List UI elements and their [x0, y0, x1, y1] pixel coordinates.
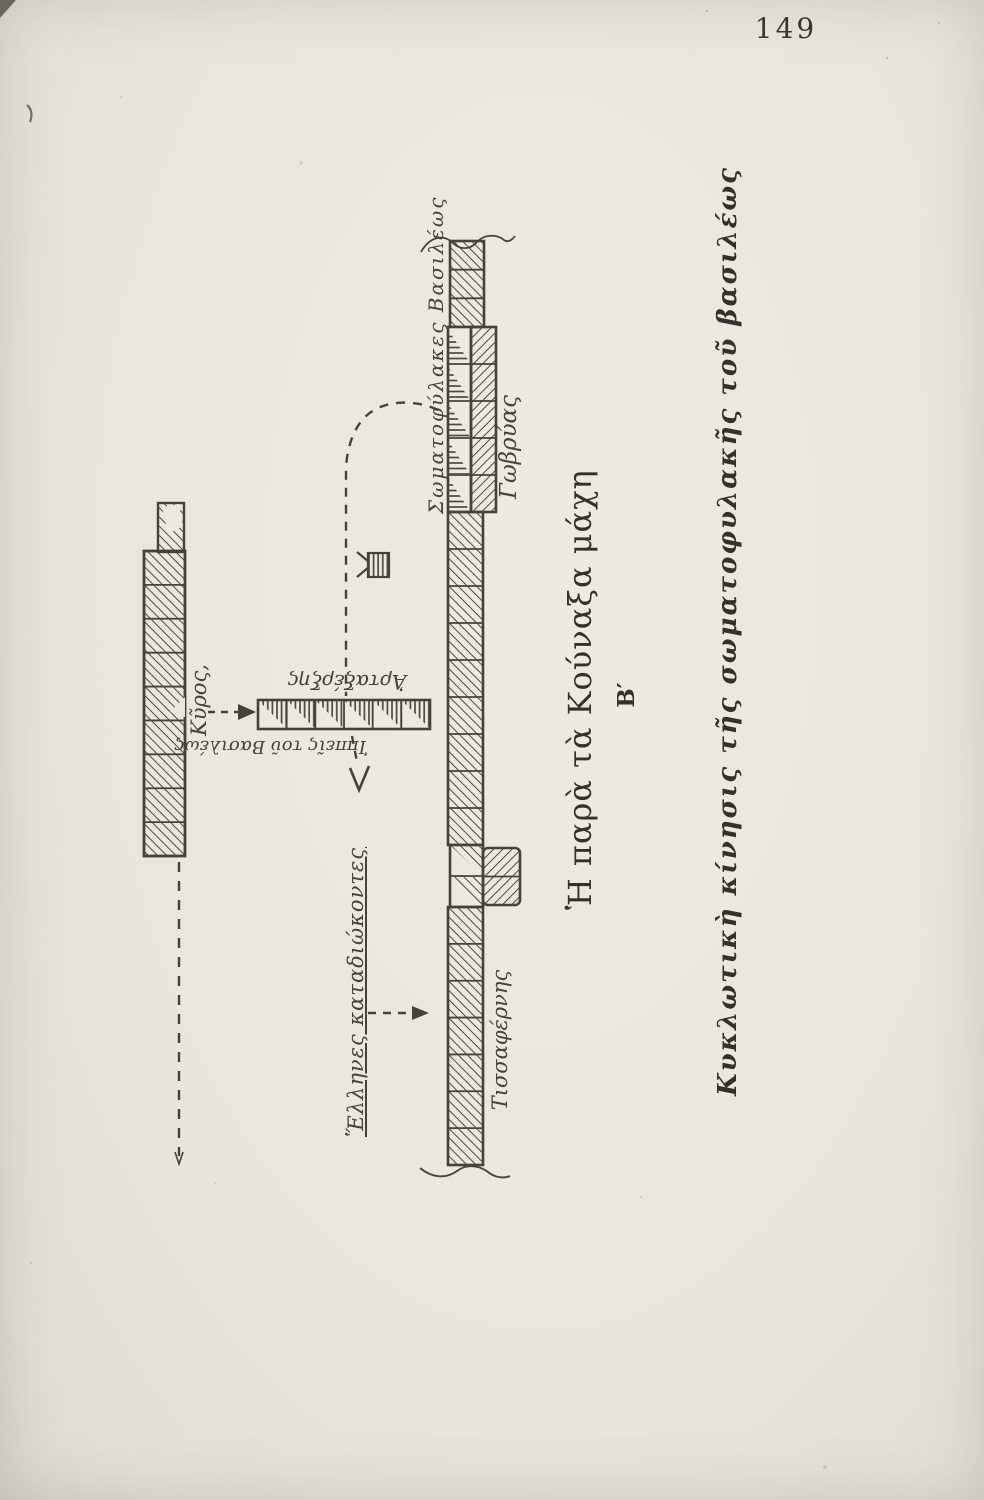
label-cyrus: Κῦρος,: [185, 659, 213, 741]
label-gobryas: Γωβρύας: [494, 382, 524, 512]
kings-standard-marker: [357, 552, 389, 577]
paper-speckles: [0, 0, 2, 2]
battle-diagram: [0, 0, 984, 1500]
diagram-title: Ἡ παρὰ τὰ Κούναξα μάχη: [556, 490, 604, 910]
section-letter: Β′: [612, 671, 642, 719]
label-royal-bodyguard: Σωματοφύλακες Βασιλέως: [423, 230, 449, 514]
scanned-book-page: 149 Ἡ παρὰ τὰ Κούναξα μάχη Β′ Κυκλωτικὴ …: [0, 0, 984, 1500]
cyrus-attack-arrow: [208, 704, 256, 720]
river-edge-bottom: [420, 1166, 510, 1177]
label-greeks-pursuing: Ἕλληνες καταδιώκοντες: [342, 859, 370, 1137]
greek-pursuit-arrow: [368, 1006, 429, 1020]
label-tissaphernes: Τισσαφέρνης: [486, 969, 514, 1111]
arrowhead-right-icon: [412, 1006, 429, 1020]
diagram-subtitle: Κυκλωτικὴ κίνησις τῆς σωματοφυλακῆς τοῦ …: [709, 354, 747, 1096]
scan-artifacts: [0, 0, 31, 122]
label-artaxerxes: Ἀρταξέρξης: [281, 667, 413, 697]
arrowhead-right-icon: [238, 704, 256, 720]
label-kings-cavalry: Ἱππεῖς τοῦ Βασιλέως: [210, 731, 368, 761]
greek-army-line: [144, 503, 185, 856]
greek-pursuit-route: [175, 862, 183, 1164]
page-number: 149: [748, 12, 824, 48]
arrowhead-down-icon: [350, 766, 369, 790]
